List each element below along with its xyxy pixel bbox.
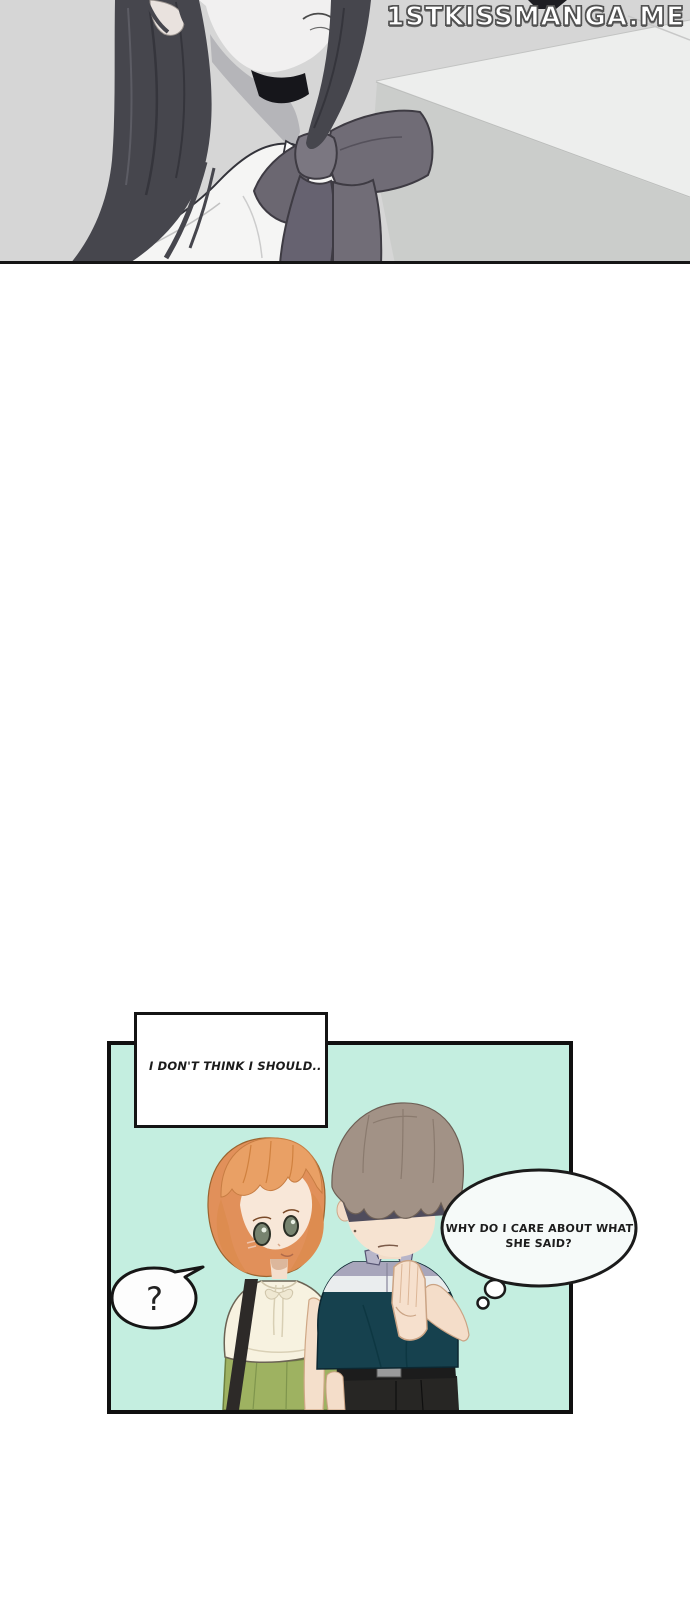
question-bubble: ? [108, 1260, 208, 1336]
caption-box: I DON'T THINK I SHOULD.. [134, 1012, 328, 1128]
thought-bubble-dot [478, 1298, 489, 1309]
question-mark-text: ? [146, 1280, 163, 1318]
manga-page: 1STKISSMANGA.ME [0, 0, 690, 1600]
boy-hand-down [326, 1372, 345, 1410]
thought-text: WHY DO I CARE ABOUT WHAT SHE SAID? [441, 1180, 637, 1292]
top-panel-artwork [0, 0, 690, 261]
caption-text: I DON'T THINK I SHOULD.. [149, 1059, 325, 1073]
boy-mole [354, 1230, 357, 1233]
site-watermark: 1STKISSMANGA.ME [386, 2, 685, 32]
thought-line-2: SHE SAID? [505, 1236, 572, 1251]
thought-line-1: WHY DO I CARE ABOUT WHAT [445, 1221, 633, 1236]
top-panel [0, 0, 690, 264]
